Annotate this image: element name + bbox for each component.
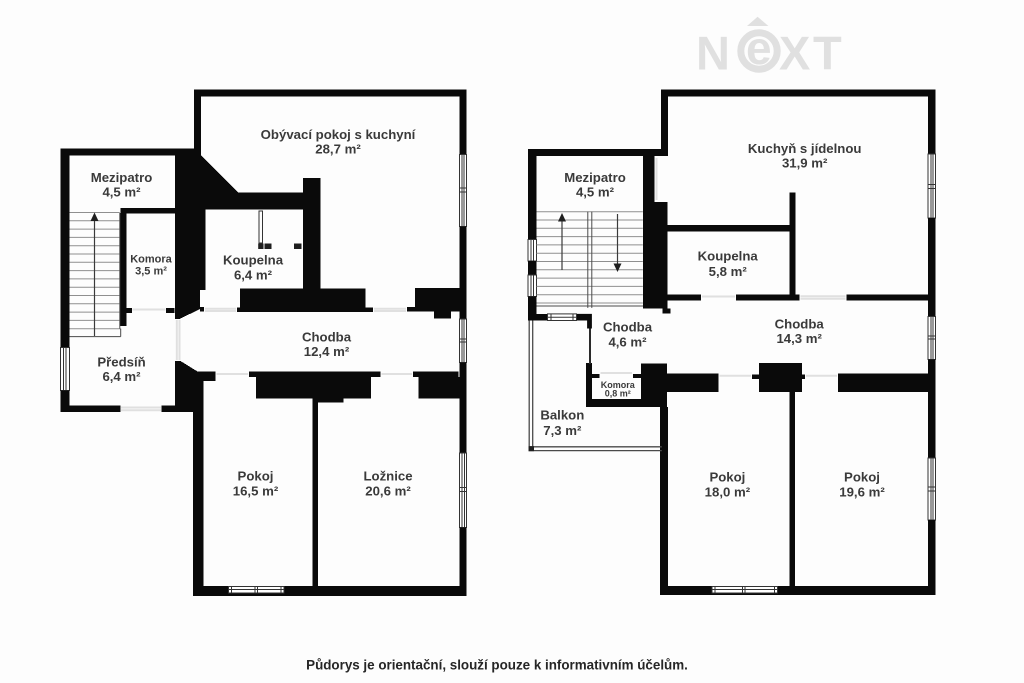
svg-text:31,9 m²: 31,9 m² bbox=[782, 156, 828, 171]
svg-text:T: T bbox=[813, 27, 842, 80]
svg-text:Chodba: Chodba bbox=[775, 316, 825, 331]
svg-text:Chodba: Chodba bbox=[302, 330, 352, 345]
svg-text:Komora: Komora bbox=[130, 254, 172, 266]
svg-text:Koupelna: Koupelna bbox=[223, 253, 284, 268]
svg-text:3,5 m²: 3,5 m² bbox=[135, 266, 167, 278]
svg-text:Koupelna: Koupelna bbox=[698, 249, 759, 264]
svg-text:Půdorys je orientační, slouží: Půdorys je orientační, slouží pouze k in… bbox=[306, 658, 688, 673]
svg-text:7,3 m²: 7,3 m² bbox=[543, 423, 582, 438]
svg-text:Balkon: Balkon bbox=[540, 408, 584, 423]
svg-text:14,3 m²: 14,3 m² bbox=[776, 331, 822, 346]
svg-text:6,4 m²: 6,4 m² bbox=[234, 267, 273, 282]
svg-text:Pokoj: Pokoj bbox=[709, 470, 745, 485]
svg-text:5,8 m²: 5,8 m² bbox=[709, 264, 748, 279]
svg-text:Pokoj: Pokoj bbox=[238, 468, 274, 483]
svg-text:Obývací pokoj s kuchyní: Obývací pokoj s kuchyní bbox=[261, 127, 417, 142]
svg-text:12,4 m²: 12,4 m² bbox=[304, 344, 350, 359]
svg-text:Chodba: Chodba bbox=[603, 320, 653, 335]
svg-text:Kuchyň s jídelnou: Kuchyň s jídelnou bbox=[748, 141, 862, 156]
svg-text:e: e bbox=[746, 22, 772, 74]
svg-text:20,6 m²: 20,6 m² bbox=[365, 484, 411, 499]
svg-text:0,8 m²: 0,8 m² bbox=[605, 388, 631, 398]
svg-text:X: X bbox=[779, 27, 810, 80]
svg-text:4,5 m²: 4,5 m² bbox=[576, 184, 615, 199]
svg-text:Ložnice: Ložnice bbox=[363, 468, 412, 483]
svg-text:N: N bbox=[696, 27, 730, 80]
svg-text:Předsíň: Předsíň bbox=[97, 355, 145, 370]
svg-text:18,0 m²: 18,0 m² bbox=[705, 484, 751, 499]
svg-text:19,6 m²: 19,6 m² bbox=[839, 484, 885, 499]
svg-text:Mezipatro: Mezipatro bbox=[91, 170, 153, 185]
svg-text:16,5 m²: 16,5 m² bbox=[233, 484, 279, 499]
svg-text:Mezipatro: Mezipatro bbox=[564, 170, 626, 185]
svg-text:6,4 m²: 6,4 m² bbox=[102, 369, 141, 384]
svg-text:Pokoj: Pokoj bbox=[844, 470, 880, 485]
svg-text:28,7 m²: 28,7 m² bbox=[315, 142, 361, 157]
svg-text:4,6 m²: 4,6 m² bbox=[608, 334, 647, 349]
svg-text:4,5 m²: 4,5 m² bbox=[102, 184, 141, 199]
